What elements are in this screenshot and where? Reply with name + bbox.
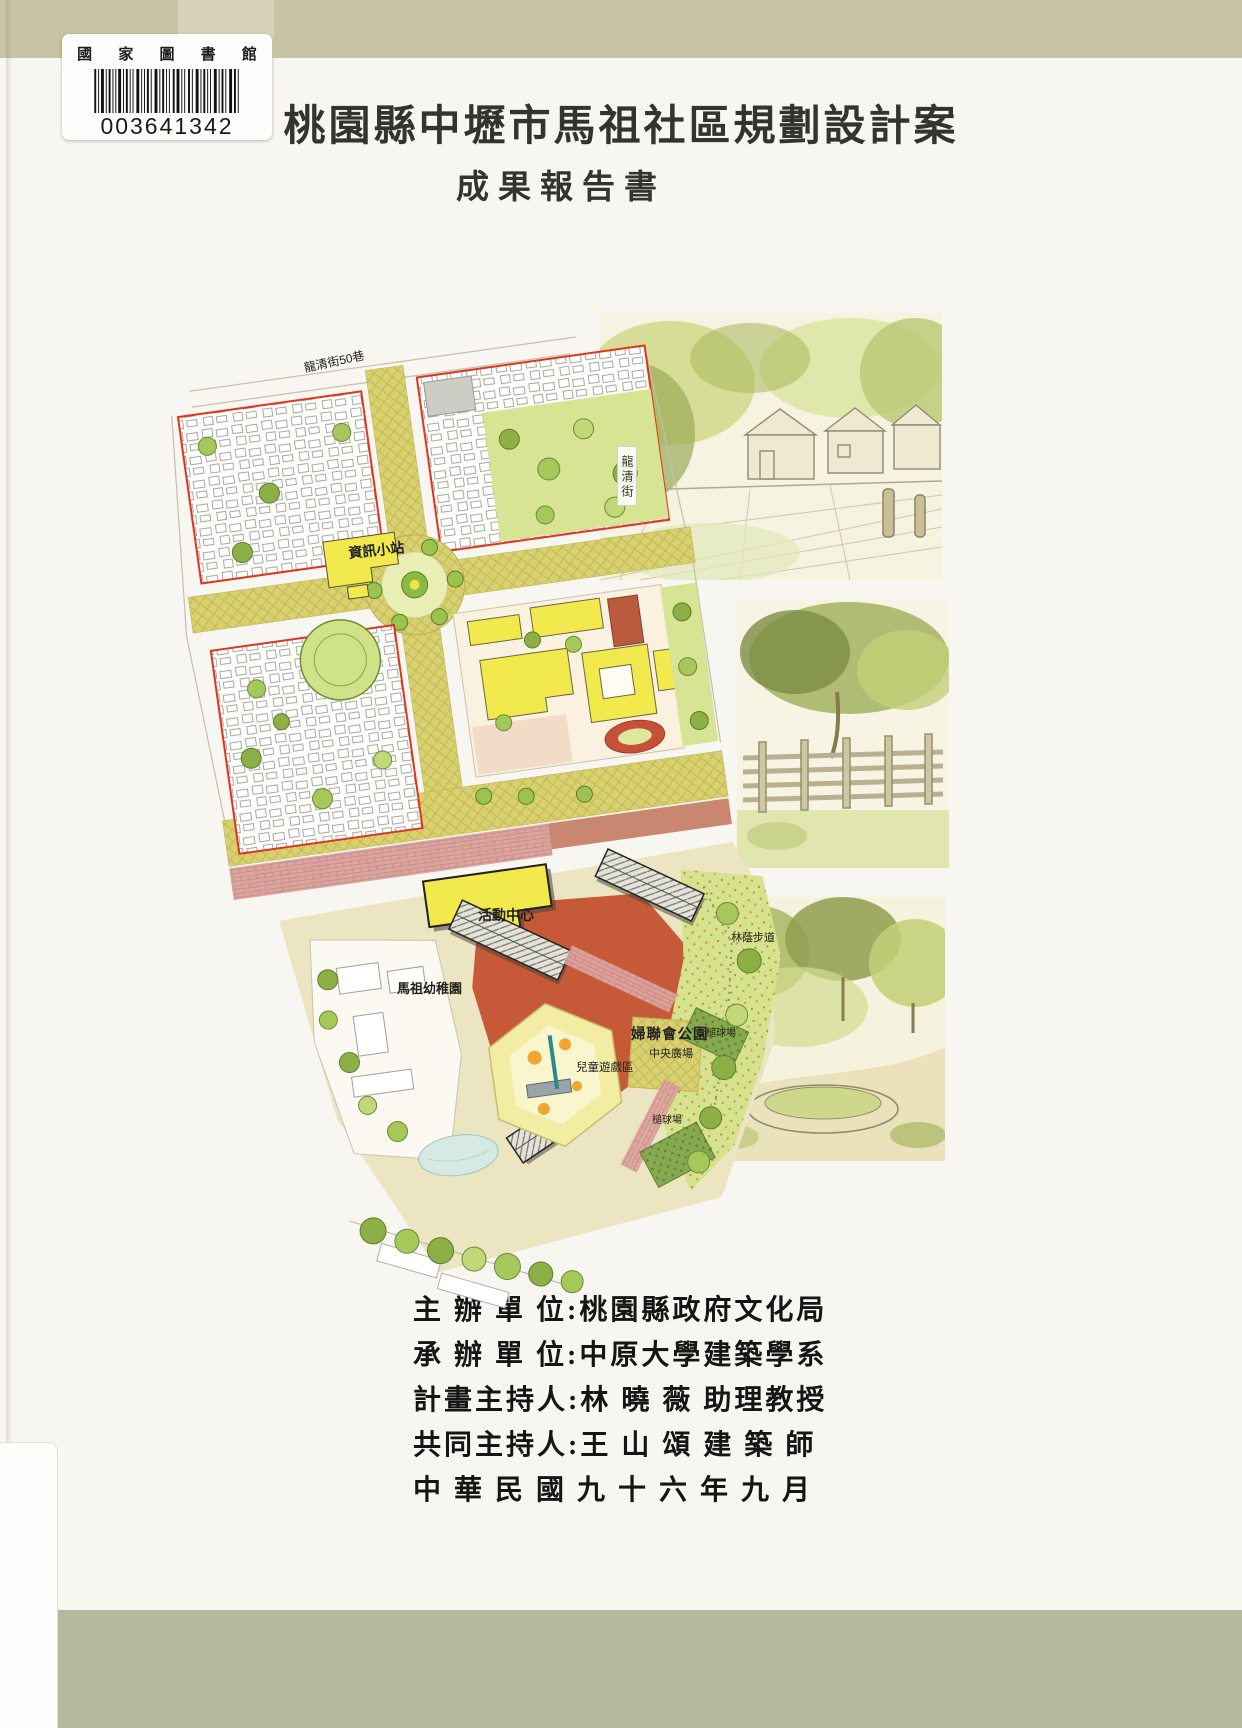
label-shaded-walk: 林蔭步道 [731, 930, 775, 944]
label-kindergarten: 馬祖幼稚園 [397, 981, 462, 996]
credit-date: 中 華 民 國 九 十 六 年 九 月 [413, 1468, 827, 1513]
credit-project-lead: 計畫主持人:林 曉 薇 助理教授 [413, 1378, 827, 1423]
block-se-complex [453, 584, 691, 778]
label-gateball-upper: 槌球場 [706, 1026, 736, 1039]
book-cover: 國 家 圖 書 館 [0, 0, 1242, 1728]
site-plan-map: 龍清街50巷 資訊小站 活動中心 林蔭步道 婦聯會公園 中央廣場 兒童遊戲區 槌… [150, 300, 790, 1340]
label-gateball-lower: 槌球場 [652, 1113, 682, 1126]
label-children-play: 兒童遊戲區 [576, 1060, 634, 1074]
site-plan-rotated [153, 321, 790, 1339]
report-subtitle: 成果報告書 [56, 160, 1066, 208]
label-activity-center: 活動中心 [478, 907, 534, 923]
bottom-band [0, 1610, 1242, 1728]
credit-co-lead: 共同主持人:王 山 頌 建 築 師 [413, 1423, 827, 1468]
library-name: 國 家 圖 書 館 [62, 43, 272, 64]
report-title: 桃園縣中壢市馬祖社區規劃設計案 [56, 92, 1186, 153]
label-central-plaza: 中央廣場 [649, 1046, 693, 1060]
label-park-name: 婦聯會公園 [630, 1025, 709, 1043]
corner-sticker-outline [0, 1442, 58, 1728]
block-sw [209, 612, 423, 854]
street-label-longqing: 龍清街 [617, 446, 637, 506]
